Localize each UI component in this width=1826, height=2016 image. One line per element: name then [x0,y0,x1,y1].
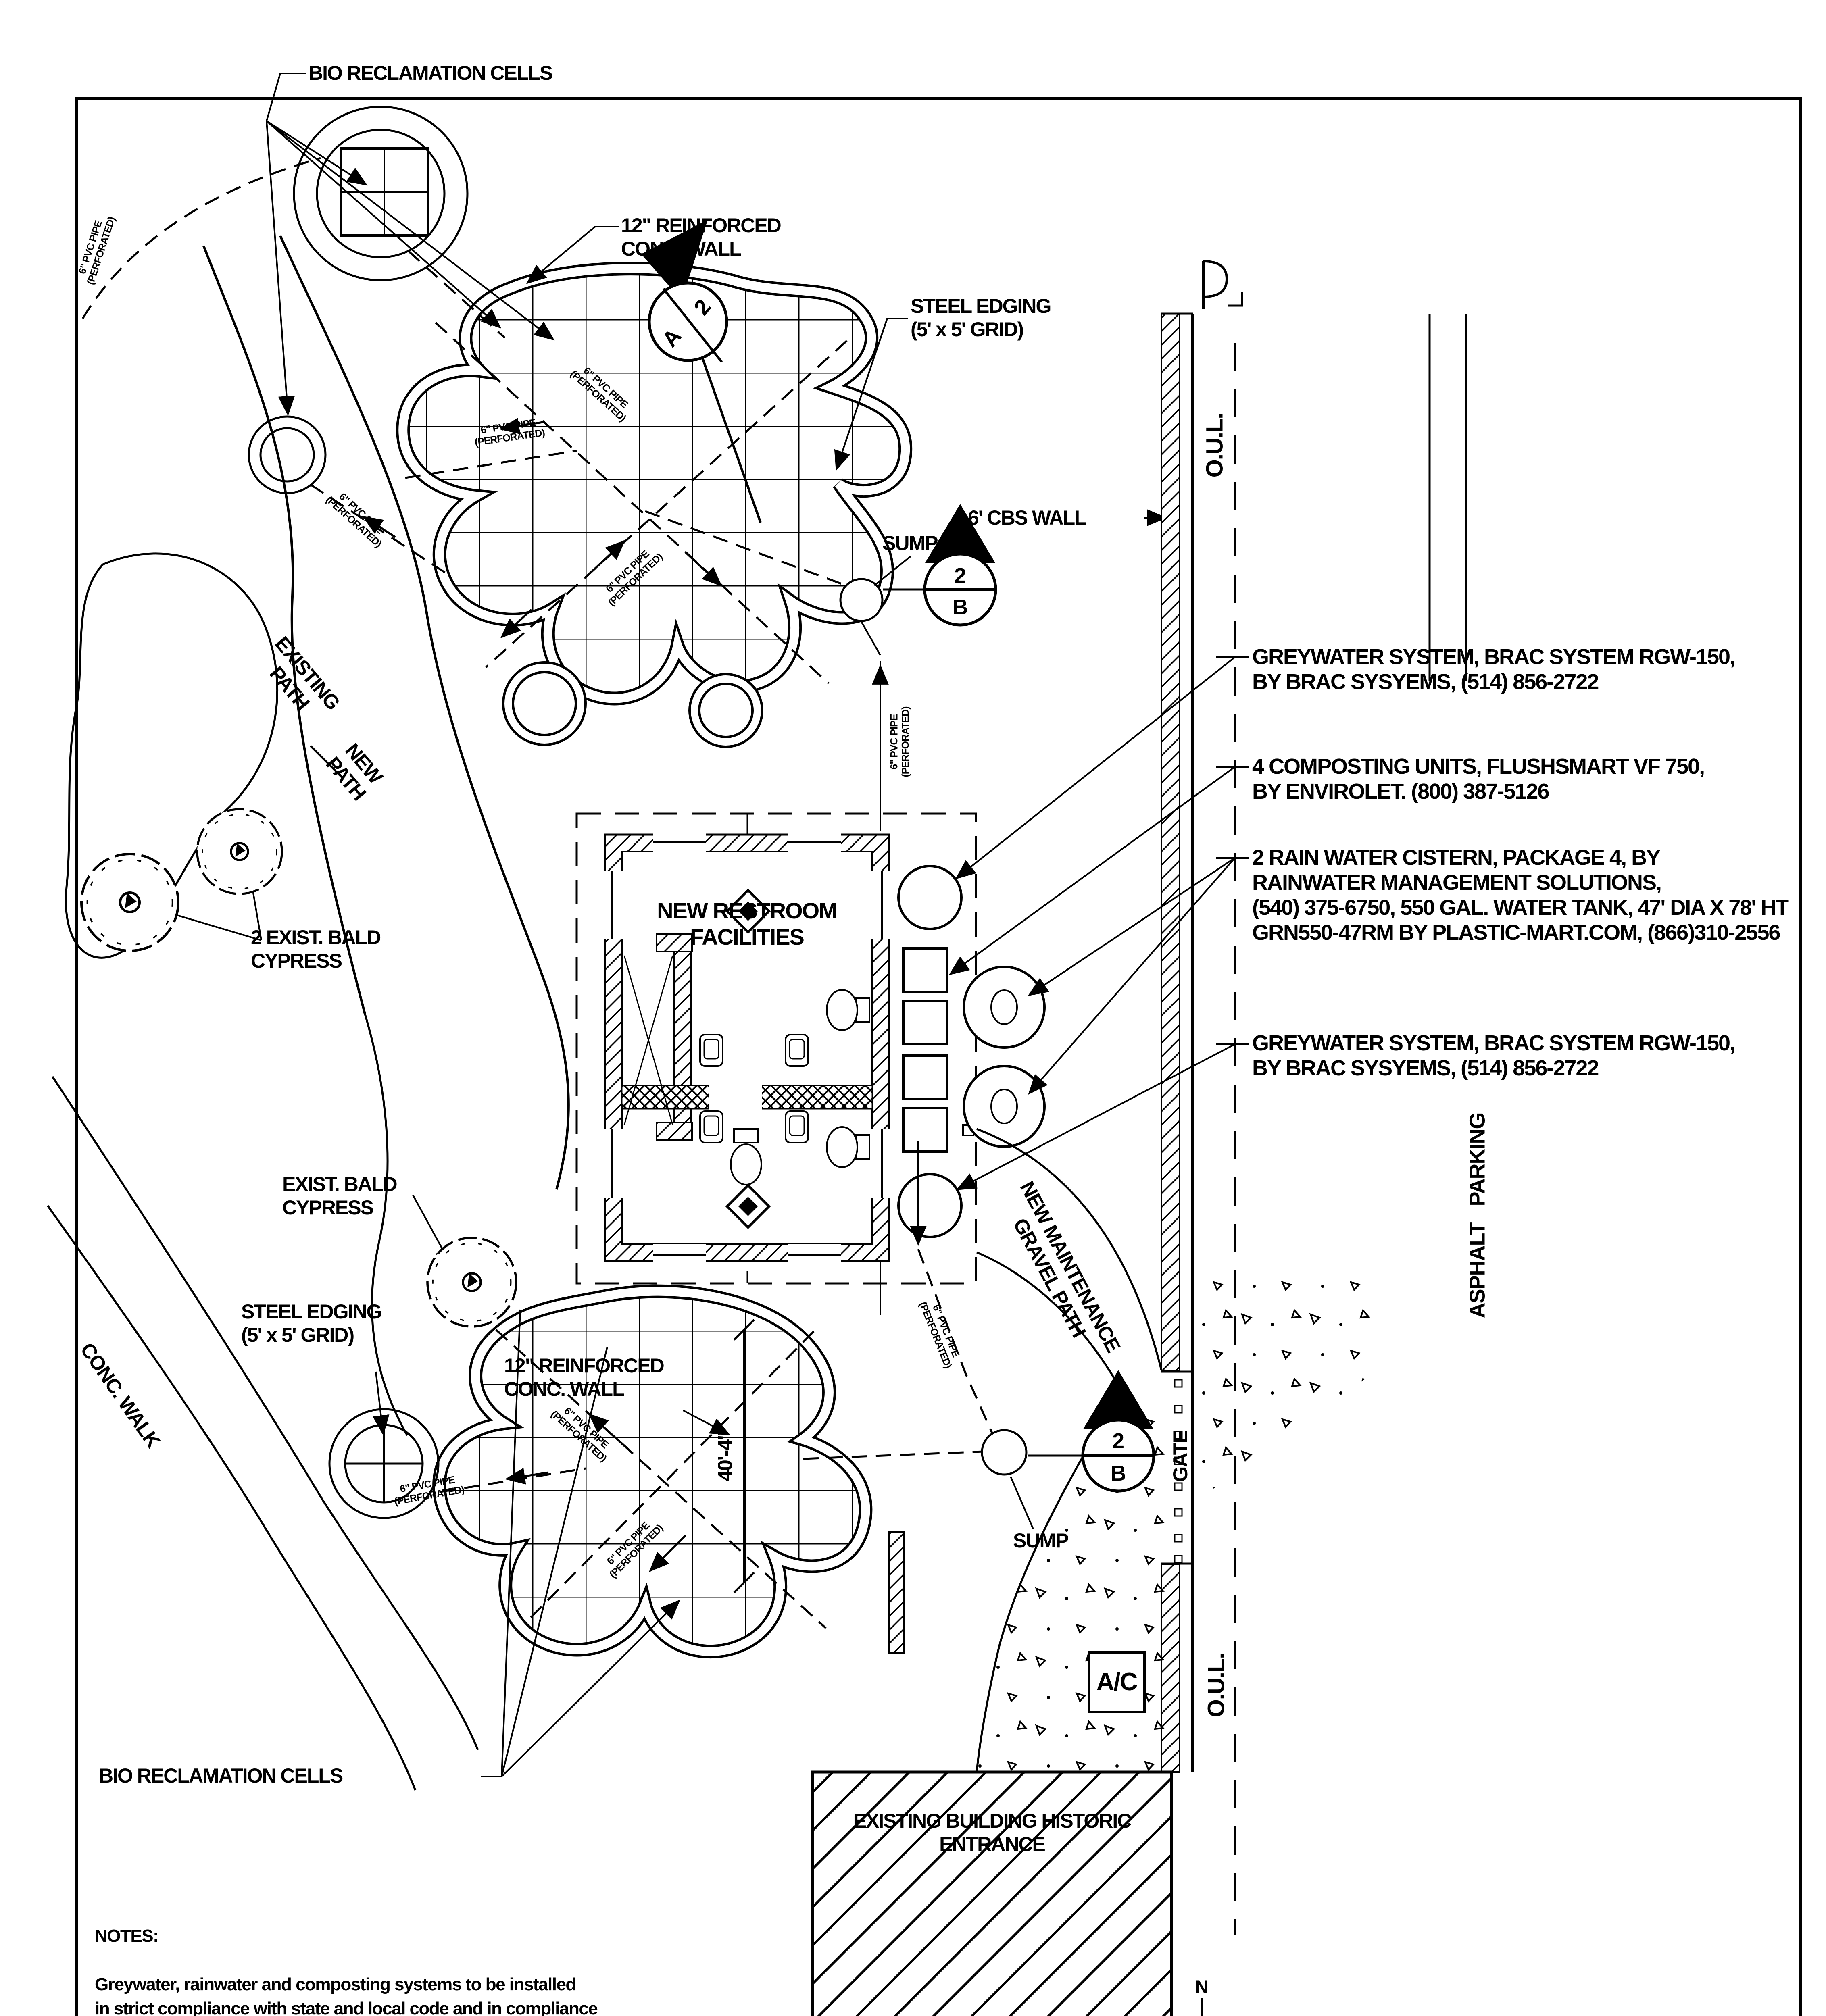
label-oul-top: O.U.L. [1201,414,1228,478]
greywater-unit-bottom [898,1174,961,1237]
sump-top-circle [840,579,882,621]
greywater-unit-top [898,866,961,929]
detail-b-bottom-number: 2 [1112,1429,1124,1454]
annotation-cistern: 2 RAIN WATER CISTERN, PACKAGE 4, BY RAIN… [1252,845,1788,945]
utility-pole-symbol [1203,261,1227,309]
annotation-composting: 4 COMPOSTING UNITS, FLUSHSMART VF 750, B… [1252,754,1704,804]
sump-bottom-circle [982,1430,1026,1475]
label-bio-cells-top: BIO RECLAMATION CELLS [309,61,552,85]
detail-b-top-number: 2 [954,563,966,588]
label-ac-unit: A/C [1096,1668,1137,1697]
pipe-label-5: 6" PVC PIPE(PERFORATED) [889,706,911,777]
annotation-greywater-top: GREYWATER SYSTEM, BRAC SYSTEM RGW-150, B… [1252,644,1735,694]
label-steel-edging-bottom: STEEL EDGING (5' x 5' GRID) [241,1300,381,1347]
detail-b-bottom-letter: B [1111,1461,1126,1486]
north-letter: N [1195,1976,1208,1997]
label-gate: GATE [1169,1431,1192,1482]
label-two-cypress: 2 EXIST. BALD CYPRESS [251,926,380,973]
label-dim-40: 40'-4" [713,1431,737,1481]
bald-cypress-tree-1 [197,809,282,894]
label-asphalt-parking: ASPHALT PARKING [1465,1113,1490,1318]
label-oul-bottom: O.U.L. [1203,1654,1230,1718]
composting-unit-3 [903,1056,947,1099]
label-bio-cells-bottom: BIO RECLAMATION CELLS [99,1764,342,1787]
top-edging-cluster-2 [249,417,325,493]
sump-feed-pipes-top [861,622,880,831]
label-exist-cypress: EXIST. BALD CYPRESS [282,1173,397,1219]
label-sump-top: SUMP [882,531,937,555]
composting-unit-1 [903,948,947,992]
label-existing-building: EXISTING BUILDING HISTORIC ENTRANCE [853,1809,1131,1856]
bottom-bio-reclamation-cells [439,1291,865,1652]
label-cbs-wall: 6' CBS WALL [968,506,1086,529]
label-sump-bottom: SUMP [1013,1529,1068,1552]
composting-unit-2 [903,1001,947,1044]
bald-cypress-tree-2 [81,854,178,951]
detail-marker-2b-bottom [1028,1370,1154,1491]
annotation-greywater-bottom: GREYWATER SYSTEM, BRAC SYSTEM RGW-150, B… [1252,1031,1735,1081]
composting-unit-4 [903,1108,947,1152]
detail-b-top-letter: B [953,595,968,620]
label-new-restroom: NEW RESTROOM FACILITIES [657,898,837,950]
label-steel-edging-top: STEEL EDGING (5' x 5' GRID) [911,294,1051,341]
notes-block: NOTES: Greywater, rainwater and composti… [95,1900,756,2016]
label-reinforced-wall-bottom: 12" REINFORCED CONC. WALL [504,1354,664,1401]
existing-building-footprint [813,1772,1171,2016]
pipe-size: 6" PVC PIPE [889,714,900,769]
bald-cypress-tree-3 [427,1238,516,1327]
notes-heading: NOTES: [95,1924,756,1948]
site-plan-sheet: BIO RECLAMATION CELLS 12" REINFORCED CON… [0,0,1826,2016]
notes-intro: Greywater, rainwater and composting syst… [95,1972,756,2016]
pipe-note: (PERFORATED) [900,706,911,777]
label-reinforced-wall-top: 12" REINFORCED CONC. WALL [621,214,781,260]
